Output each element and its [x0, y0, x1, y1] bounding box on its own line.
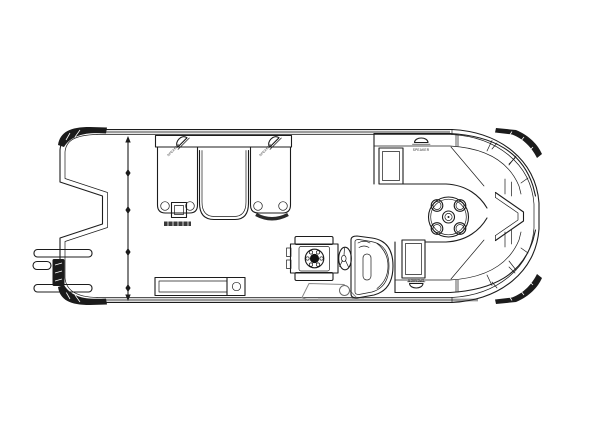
hull-outline: [80, 130, 539, 303]
helm-console: [351, 236, 393, 298]
corner-cap-top-left: [58, 127, 107, 147]
round-table: [429, 197, 469, 237]
corner-cap-bottom-right: [495, 274, 542, 304]
stern-entry-notch: [496, 193, 524, 241]
helm-chair: [287, 237, 339, 281]
corner-cap-top-right: [495, 128, 542, 158]
cup-holder: [254, 202, 263, 211]
speaker-label: SPEAKER: [407, 278, 424, 282]
speaker-bow-starboard: SPEAKER: [258, 133, 281, 157]
helm-base-cupholder: [340, 286, 350, 296]
ladder-rung: [33, 262, 51, 270]
subwoofer-box: [172, 203, 187, 218]
corner-cap-bottom-left: [58, 285, 107, 305]
boarding-ladder: [33, 250, 92, 293]
speaker-label: SPEAKER: [166, 142, 181, 157]
ladder-rail-top: [34, 250, 92, 258]
bow-lounge-port: [158, 147, 198, 213]
speaker-icon: [415, 138, 429, 143]
steering-wheel-icon: [339, 247, 352, 270]
illegible-label-hatch: [164, 222, 191, 227]
speaker-stern-bottom: SPEAKER: [407, 278, 425, 288]
speaker-stern-top: SPEAKER: [413, 138, 431, 152]
cup-holder: [232, 282, 240, 290]
console-windshield: [377, 244, 388, 289]
console-panel: [363, 254, 371, 280]
storage-step: [155, 278, 245, 296]
cup-holder: [161, 202, 170, 211]
corner-caps: [58, 127, 542, 305]
helm-station: [287, 236, 394, 300]
stern-hull-curve: [452, 130, 539, 303]
stern-lounge-top: [374, 134, 536, 209]
bow-gate-line: [125, 136, 130, 301]
ladder-step-pad: [53, 259, 65, 286]
seat-front-shade: [256, 215, 288, 219]
bow-lounge-center-cushion: [200, 151, 249, 220]
pontoon-floorplan-drawing: SPEAKER SPEAKER: [0, 0, 600, 425]
speaker-label: SPEAKER: [258, 142, 273, 157]
bow-lounge-starboard: [251, 147, 291, 213]
speaker-label: SPEAKER: [413, 148, 430, 152]
speaker-icon: [410, 284, 424, 289]
bow-fence: [60, 130, 108, 303]
floorplan-svg: SPEAKER SPEAKER: [0, 0, 600, 425]
speaker-bow-port: SPEAKER: [166, 133, 189, 157]
cup-holder: [279, 202, 288, 211]
